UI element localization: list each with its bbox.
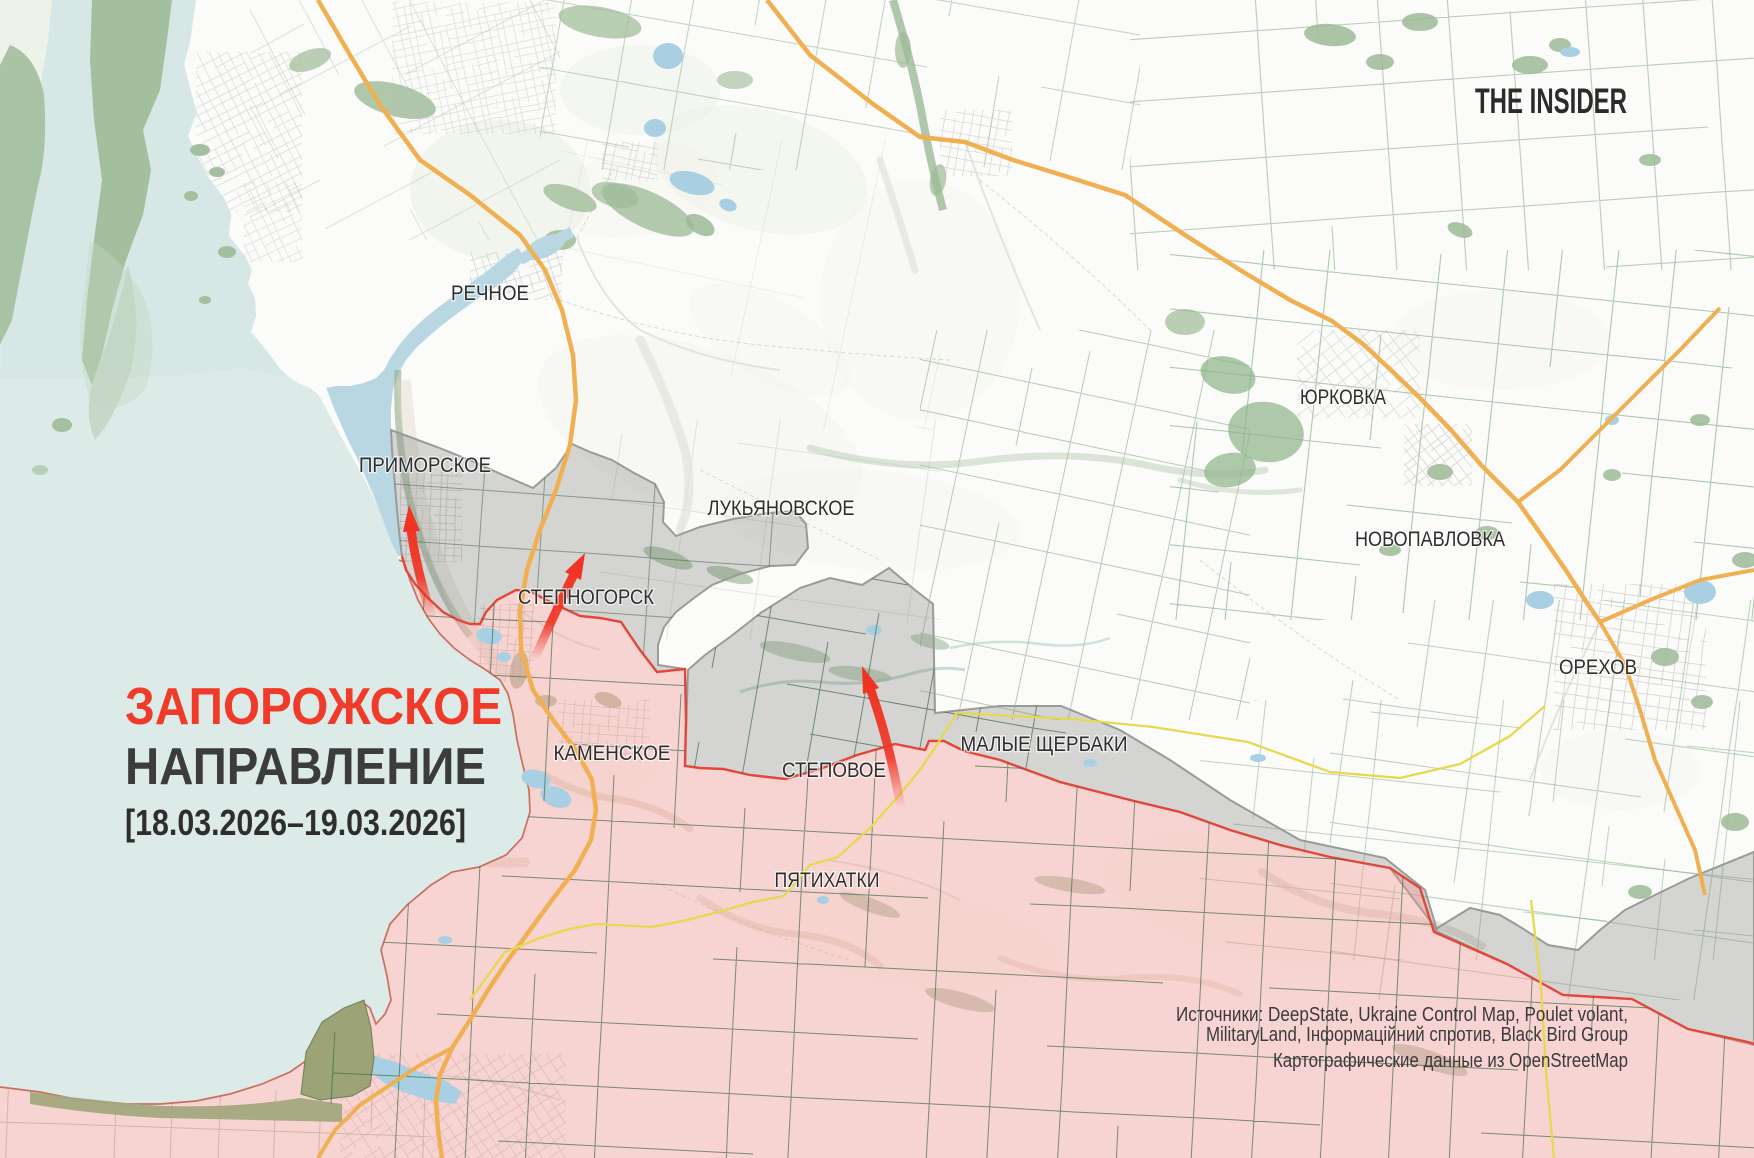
svg-text:ПЯТИХАТКИ: ПЯТИХАТКИ	[775, 869, 880, 892]
svg-text:ЛУКЬЯНОВСКОЕ: ЛУКЬЯНОВСКОЕ	[708, 497, 855, 520]
svg-text:MilitaryLand, Інформаційний сп: MilitaryLand, Інформаційний спротив, Bla…	[1206, 1024, 1628, 1046]
svg-text:ЮРКОВКА: ЮРКОВКА	[1300, 386, 1386, 409]
svg-text:СТЕПНОГОРСК: СТЕПНОГОРСК	[518, 586, 655, 609]
svg-text:КАМЕНСКОЕ: КАМЕНСКОЕ	[554, 742, 671, 765]
svg-text:ЗАПОРОЖСКОЕ: ЗАПОРОЖСКОЕ	[125, 678, 502, 736]
svg-text:THE INSIDER: THE INSIDER	[1475, 82, 1627, 121]
svg-text:НОВОПАВЛОВКА: НОВОПАВЛОВКА	[1355, 528, 1505, 551]
svg-text:ОРЕХОВ: ОРЕХОВ	[1559, 656, 1637, 679]
svg-text:РЕЧНОЕ: РЕЧНОЕ	[451, 282, 529, 305]
svg-text:НАПРАВЛЕНИЕ: НАПРАВЛЕНИЕ	[125, 738, 486, 796]
svg-text:[18.03.2026–19.03.2026]: [18.03.2026–19.03.2026]	[125, 802, 466, 843]
svg-text:Картографические данные из Ope: Картографические данные из OpenStreetMap	[1273, 1050, 1628, 1072]
svg-text:СТЕПОВОЕ: СТЕПОВОЕ	[782, 759, 886, 782]
svg-text:ПРИМОРСКОЕ: ПРИМОРСКОЕ	[359, 454, 491, 477]
svg-text:Источники: DeepState, Ukraine: Источники: DeepState, Ukraine Control Ma…	[1176, 1004, 1628, 1026]
svg-text:МАЛЫЕ ЩЕРБАКИ: МАЛЫЕ ЩЕРБАКИ	[961, 733, 1128, 756]
